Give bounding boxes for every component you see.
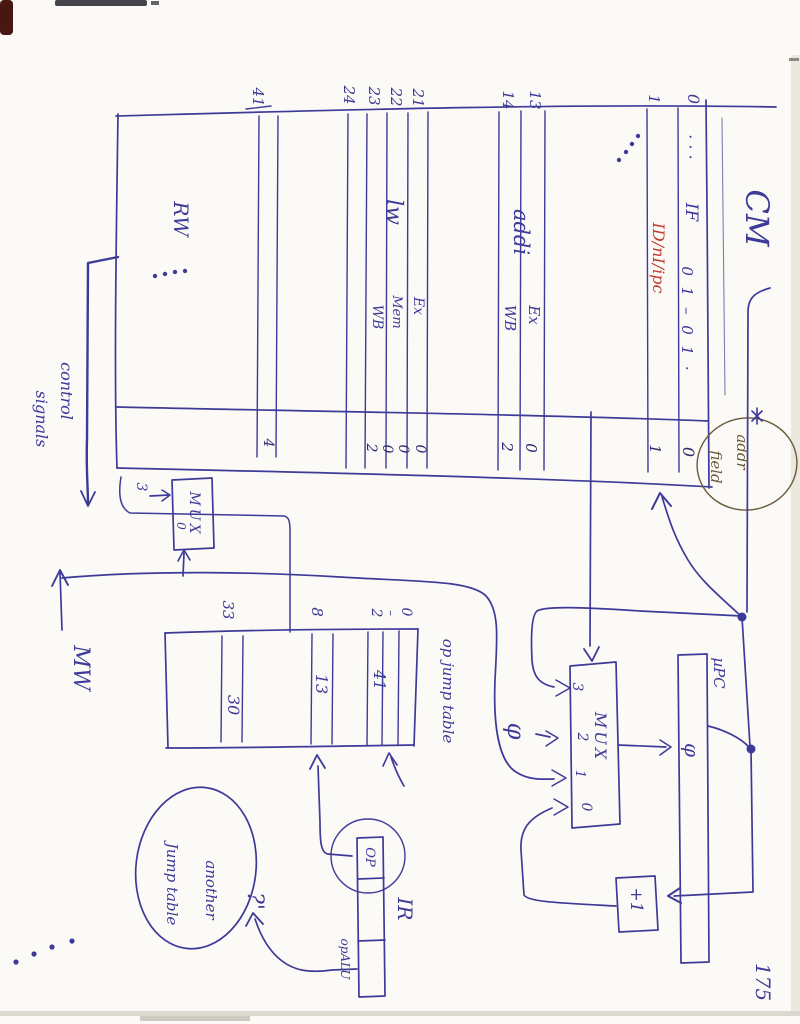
op-jump-table-outline — [165, 629, 418, 748]
dispatch-bus-wire — [52, 550, 554, 779]
cm-to-table-wire — [120, 477, 290, 632]
star-icon — [752, 408, 762, 424]
note-ellipse — [127, 780, 357, 971]
addr-field-circle — [691, 408, 800, 517]
control-signals-wire — [81, 257, 118, 506]
upc-mux-box — [536, 412, 671, 828]
diagram-linework — [0, 0, 800, 1024]
scanned-notebook-page: CM 0 1 13 14 21 22 23 24 41 · · · IF 0 1… — [0, 0, 800, 1024]
plus1-box — [616, 876, 658, 932]
upc-register — [678, 654, 709, 963]
cm-table-outline — [115, 100, 776, 488]
